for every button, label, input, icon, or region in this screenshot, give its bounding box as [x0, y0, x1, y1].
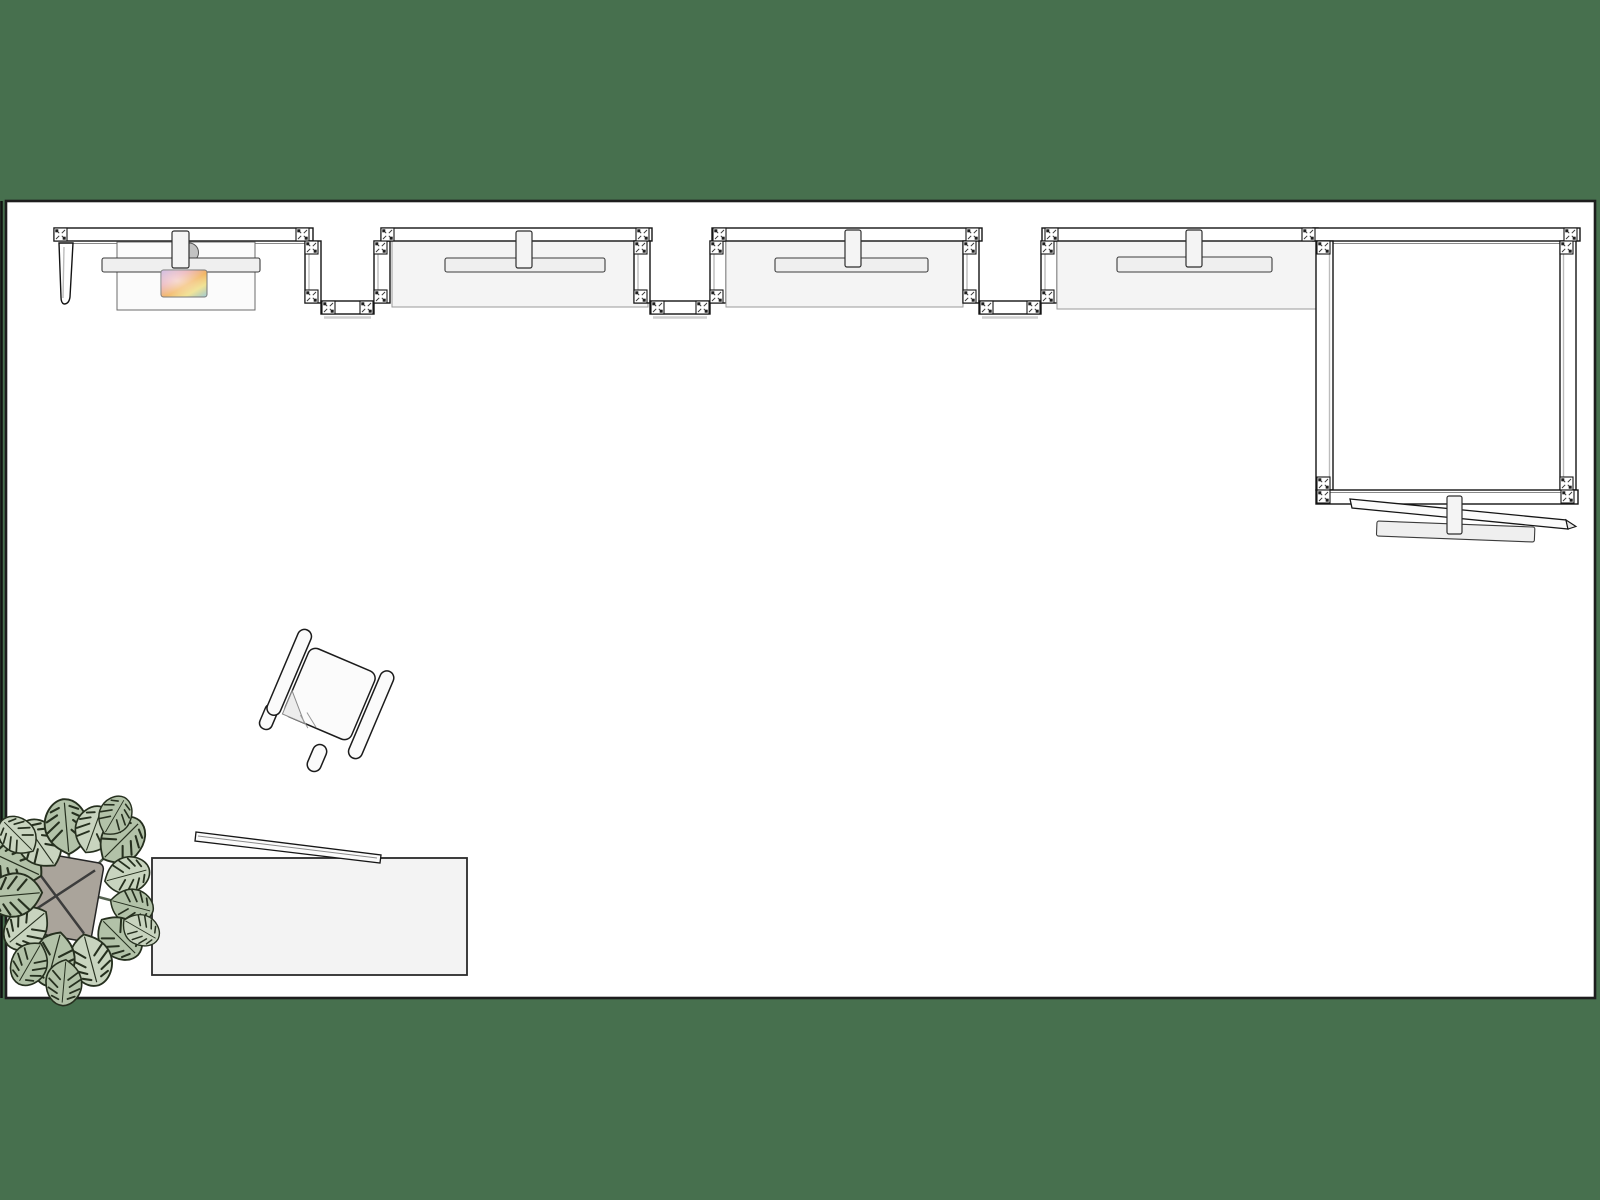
wall-bracket	[172, 231, 189, 268]
wall-beam	[1042, 228, 1318, 241]
wall-bracket	[1186, 230, 1202, 267]
display-panel-bay	[1042, 228, 1318, 309]
artwork	[161, 270, 207, 297]
display-panel-bay	[712, 228, 982, 307]
display-panel-bay	[381, 228, 652, 307]
room-wall-left	[1316, 241, 1333, 490]
room-wall-right	[1560, 241, 1576, 490]
wall-bracket	[516, 231, 532, 268]
wall-bracket	[845, 230, 861, 267]
sideboard-table	[152, 858, 467, 975]
room-wall-top	[1313, 228, 1580, 241]
floor-plan-canvas	[0, 0, 1600, 1200]
render-viewport	[0, 0, 1600, 1200]
shelf-bracket	[1447, 496, 1462, 534]
